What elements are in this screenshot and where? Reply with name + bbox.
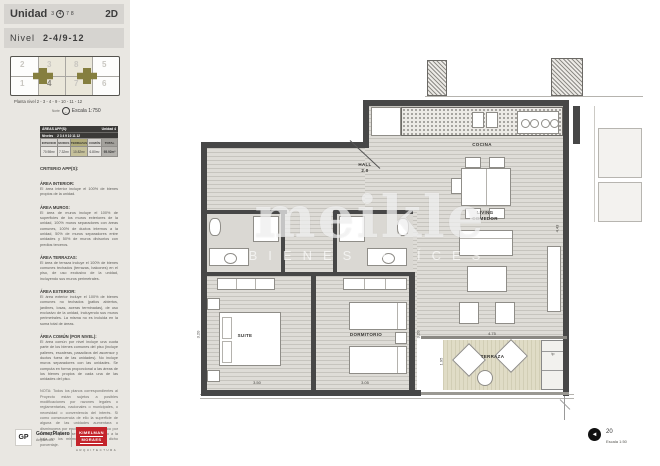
sheet-number: 20 <box>606 429 613 435</box>
stove-burner <box>521 119 530 128</box>
pillow-line <box>397 303 398 329</box>
keyplan-unit-6: 6 <box>102 79 106 88</box>
keyplan: 2 3 8 5 1 4 7 6 <box>10 56 120 96</box>
unidad-unit-4-circled: 4 <box>56 10 64 18</box>
gp-wordmark: GómezPlatero Arquitectos <box>36 431 70 442</box>
keyplan-unit-3: 3 <box>47 60 51 69</box>
col-interior: INTERIOR <box>41 139 58 146</box>
block-body-comun: El área común por nivel incluye una cuot… <box>40 340 118 383</box>
val-interior: 70.98m² <box>41 147 58 156</box>
north-arrow-glyph: ◄ <box>592 432 598 438</box>
north-arrow-icon: ← <box>62 107 70 115</box>
sofa <box>459 230 513 256</box>
nightstand <box>395 332 407 344</box>
suite-bed <box>219 312 281 366</box>
keyplan-unit-4-current: 4 <box>47 79 51 88</box>
block-body-muros: El área de muros incluye el 100% de supe… <box>40 211 118 248</box>
service-room <box>541 340 565 390</box>
nivel-label: Nivel <box>10 33 35 43</box>
wall <box>201 272 413 276</box>
wall <box>363 100 569 106</box>
col-total: TOTAL <box>102 139 117 146</box>
dim-dorm-width: 3.05 <box>345 380 385 385</box>
niveles-value: 2 3 4 9 10 11 12 <box>57 134 80 138</box>
wall <box>363 100 369 148</box>
footer-escala: Escala 1:50 <box>606 439 627 444</box>
areas-table-header-row: INTERIOR MUROS TERRAZAS COMÚN TOTAL <box>40 138 118 147</box>
val-terrazas: 10.82m² <box>71 147 88 156</box>
dorm-closet <box>343 278 407 290</box>
single-bed-2 <box>349 346 407 374</box>
unit-type: 2D <box>105 9 118 20</box>
areas-table-title: ÁREAS APP(S): <box>42 127 67 131</box>
unidad-unit-8: 8 <box>71 11 74 17</box>
closet-divider <box>385 279 386 289</box>
vanity-2 <box>367 248 407 266</box>
vanity-1 <box>209 248 249 266</box>
dim-terrace-depth: 1.95 <box>439 356 444 368</box>
norte-label: Norte <box>52 109 60 113</box>
wall <box>563 100 569 396</box>
wall <box>201 390 421 396</box>
armchair <box>459 302 479 324</box>
block-head-comun: ÁREA COMÚN (POR NIVEL): <box>40 334 118 339</box>
hall-label: HALL 2.0 <box>345 162 385 173</box>
shower-2 <box>339 216 365 242</box>
footer-divider <box>71 429 72 447</box>
keyplan-unit-1: 1 <box>20 79 24 88</box>
gp-name: GómezPlatero <box>36 431 70 437</box>
floor-plan: HALL 2.0 COCINA LIVING COMEDOR SUITE DOR… <box>195 84 647 434</box>
dim-suite-width: 3.50 <box>237 380 277 385</box>
hall-number: 2.0 <box>345 168 385 174</box>
val-comun: 6.80m² <box>88 147 102 156</box>
kitchen-sink-right <box>486 112 498 128</box>
terrace-table <box>477 370 493 386</box>
wall <box>201 210 287 214</box>
criterio-title: CRITERIO APP(S): <box>40 166 118 171</box>
shower-1 <box>253 216 279 242</box>
pillow-line <box>397 347 398 373</box>
nightstand <box>207 298 220 310</box>
keyplan-unit-7: 7 <box>74 79 78 88</box>
unidad-unit-7: 7 <box>66 11 69 17</box>
wall <box>311 276 316 390</box>
sink-basin <box>224 253 237 264</box>
km-line1: KIMELMAN <box>79 430 104 435</box>
cocina-label: COCINA <box>452 142 512 148</box>
suite-label: SUITE <box>225 333 265 339</box>
val-muros: 7.32m² <box>58 147 71 156</box>
block-head-muros: ÁREA MUROS: <box>40 205 118 210</box>
val-total: 95.92m² <box>102 147 117 156</box>
wall <box>335 210 413 214</box>
areas-table-unit: Unidad 4 <box>102 127 116 131</box>
closet-divider <box>236 279 237 289</box>
col-comun: COMÚN <box>88 139 102 146</box>
kimelman-logo: KIMELMAN MORAES <box>76 427 107 446</box>
service-closet <box>542 341 564 352</box>
plan-sheet: Unidad 3 4 7 8 2D Nivel 2-4/9-12 2 3 8 5… <box>0 0 660 466</box>
closet-divider <box>364 279 365 289</box>
gp-sub: Arquitectos <box>36 438 70 442</box>
col-terrazas: TERRAZAS <box>71 139 88 146</box>
niveles-label: Niveles <box>42 134 53 138</box>
pillow <box>222 341 232 363</box>
keyplan-scale-row: Norte ← Escala 1:750 <box>52 107 122 115</box>
toilet-2 <box>397 218 409 236</box>
criterio-column: CRITERIO APP(S): ÁREA INTERIOR: El área … <box>40 166 118 455</box>
closet-divider <box>255 279 256 289</box>
keyplan-caption: Planta nivel 2 - 3 - 4 - 9 - 10 - 11 - 1… <box>14 99 124 104</box>
stove-burner <box>530 119 539 128</box>
dim-terrace-width: 4.75 <box>470 331 514 336</box>
dining-table <box>461 168 511 206</box>
block-body-terrazas: El área de terraza incluye el 100% de bi… <box>40 261 118 282</box>
areas-table-values-row: 70.98m² 7.32m² 10.82m² 6.80m² 95.92m² <box>40 147 118 157</box>
km-sub: ARQUITECTURA <box>76 448 107 452</box>
wall <box>281 210 285 276</box>
block-head-terrazas: ÁREA TERRAZAS: <box>40 255 118 260</box>
suite-closet <box>217 278 275 290</box>
stove-burner <box>541 119 550 128</box>
sideboard <box>547 246 561 312</box>
dim-dorm-depth: 3.20 <box>416 329 421 341</box>
keyplan-unit-8: 8 <box>74 60 78 69</box>
living-label-line2: COMEDOR <box>455 216 515 222</box>
north-arrow-footer-icon: ◄ <box>588 428 601 441</box>
dining-chair <box>489 157 505 168</box>
nivel-value: 2-4/9-12 <box>43 33 85 43</box>
unidad-header-bar: Unidad 3 4 7 8 2D <box>4 4 124 24</box>
sofa-back-line <box>460 238 512 239</box>
unidad-label: Unidad <box>10 8 47 20</box>
service-room-label: tp <box>545 352 561 356</box>
gp-logo: GP <box>15 429 32 446</box>
wall <box>333 210 337 276</box>
areas-table: ÁREAS APP(S): Unidad 4 Niveles 2 3 4 9 1… <box>40 126 118 157</box>
block-head-interior: ÁREA INTERIOR: <box>40 181 118 186</box>
keyplan-escala: Escala 1:750 <box>72 108 101 114</box>
block-head-exterior: ÁREA EXTERIOR: <box>40 289 118 294</box>
block-body-exterior: El área exterior incluye el 100% de bien… <box>40 295 118 327</box>
stove-burner <box>550 119 559 128</box>
dormitorio-label: DORMITORIO <box>341 332 391 338</box>
nightstand <box>207 370 220 382</box>
kitchen-sink-left <box>472 112 484 128</box>
coffee-table <box>467 266 507 292</box>
kitchen-stove <box>517 111 559 134</box>
dim-living-depth: 4.43 <box>555 223 560 235</box>
kitchen-cabinet <box>371 107 401 136</box>
wall <box>201 142 369 148</box>
keyplan-unit-5: 5 <box>102 60 106 69</box>
table-divider <box>486 169 487 205</box>
terraza-label: TERRAZA <box>470 354 515 360</box>
left-info-panel: Unidad 3 4 7 8 2D Nivel 2-4/9-12 2 3 8 5… <box>0 0 130 466</box>
wall <box>409 272 415 390</box>
armchair <box>495 302 515 324</box>
col-muros: MUROS <box>58 139 71 146</box>
living-label: LIVING COMEDOR <box>455 210 515 221</box>
block-body-interior: El área interior incluye el 100% de bien… <box>40 187 118 198</box>
keyplan-grid-line <box>11 76 119 77</box>
dining-chair <box>465 157 481 168</box>
wall <box>201 142 207 396</box>
sink-basin <box>382 253 395 264</box>
sliding-door-track <box>421 336 567 339</box>
keyplan-unit-2: 2 <box>20 60 24 69</box>
nivel-header-bar: Nivel 2-4/9-12 <box>4 28 124 48</box>
km-line2: MORAES <box>80 436 104 444</box>
single-bed-1 <box>349 302 407 330</box>
dim-suite-depth: 3.20 <box>196 329 201 341</box>
terrace-railing <box>421 392 569 395</box>
toilet-1 <box>209 218 221 236</box>
unidad-unit-3: 3 <box>51 11 54 17</box>
